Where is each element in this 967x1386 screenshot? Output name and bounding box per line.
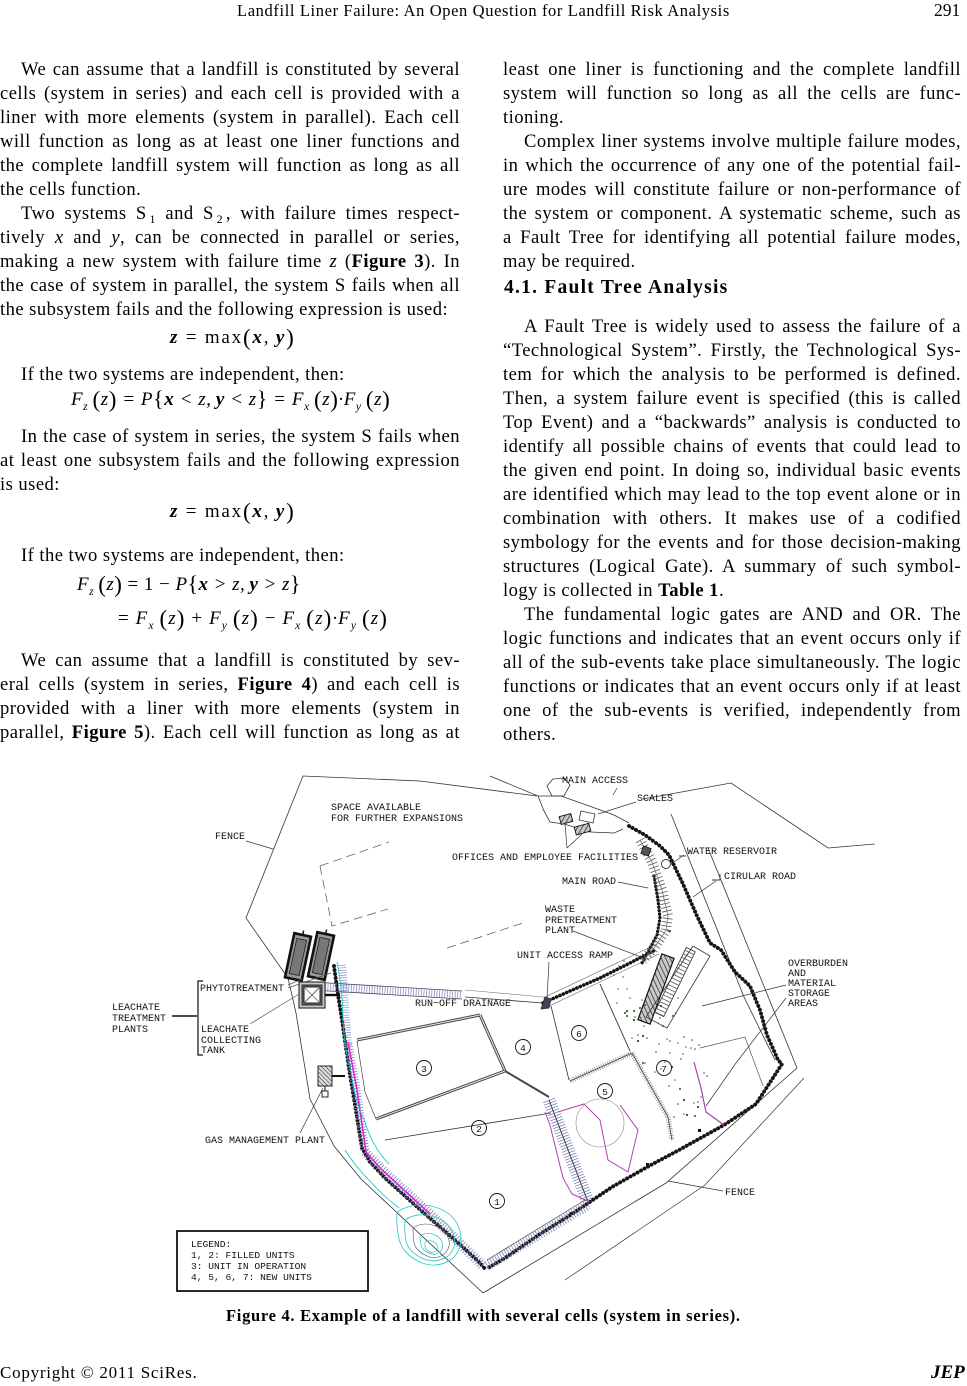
svg-text:1: 1 [494, 1197, 500, 1208]
svg-text:4: 4 [520, 1043, 526, 1054]
svg-text:PHYTOTREATMENT: PHYTOTREATMENT [200, 984, 284, 995]
svg-text:AREAS: AREAS [788, 999, 818, 1010]
svg-text:GAS MANAGEMENT PLANT: GAS MANAGEMENT PLANT [205, 1136, 325, 1147]
svg-text:LEGEND:: LEGEND: [191, 1239, 231, 1250]
svg-text:1, 2: FILLED UNITS: 1, 2: FILLED UNITS [191, 1250, 295, 1261]
svg-text:FENCE: FENCE [215, 832, 245, 843]
svg-text:PLANTS: PLANTS [112, 1025, 148, 1036]
svg-text:LEACHATE: LEACHATE [201, 1025, 249, 1036]
svg-text:RUN−OFF DRAINAGE: RUN−OFF DRAINAGE [415, 999, 511, 1010]
svg-text:SCALES: SCALES [637, 794, 673, 805]
svg-text:WASTE: WASTE [545, 905, 575, 916]
svg-text:WATER RESERVOIR: WATER RESERVOIR [687, 847, 777, 858]
svg-text:MAIN ROAD: MAIN ROAD [562, 877, 616, 888]
svg-text:CIRULAR ROAD: CIRULAR ROAD [724, 872, 796, 883]
svg-text:FENCE: FENCE [725, 1188, 755, 1199]
svg-text:6: 6 [576, 1029, 582, 1040]
svg-text:MAIN ACCESS: MAIN ACCESS [562, 776, 628, 787]
svg-text:UNIT ACCESS RAMP: UNIT ACCESS RAMP [517, 951, 613, 962]
svg-text:3: UNIT IN OPERATION: 3: UNIT IN OPERATION [191, 1261, 306, 1272]
svg-text:FOR FURTHER EXPANSIONS: FOR FURTHER EXPANSIONS [331, 814, 463, 825]
svg-text:5: 5 [602, 1087, 608, 1098]
svg-text:3: 3 [421, 1064, 427, 1075]
svg-text:7: 7 [661, 1064, 667, 1075]
svg-text:LEACHATE: LEACHATE [112, 1003, 160, 1014]
svg-text:SPACE AVAILABLE: SPACE AVAILABLE [331, 803, 421, 814]
svg-text:PLANT: PLANT [545, 926, 575, 937]
svg-text:TREATMENT: TREATMENT [112, 1014, 166, 1025]
svg-text:2: 2 [476, 1124, 482, 1135]
svg-text:4, 5, 6, 7: NEW UNITS: 4, 5, 6, 7: NEW UNITS [191, 1272, 312, 1283]
svg-text:OFFICES AND EMPLOYEE FACILITIE: OFFICES AND EMPLOYEE FACILITIES [452, 853, 638, 864]
svg-text:TANK: TANK [201, 1046, 225, 1057]
